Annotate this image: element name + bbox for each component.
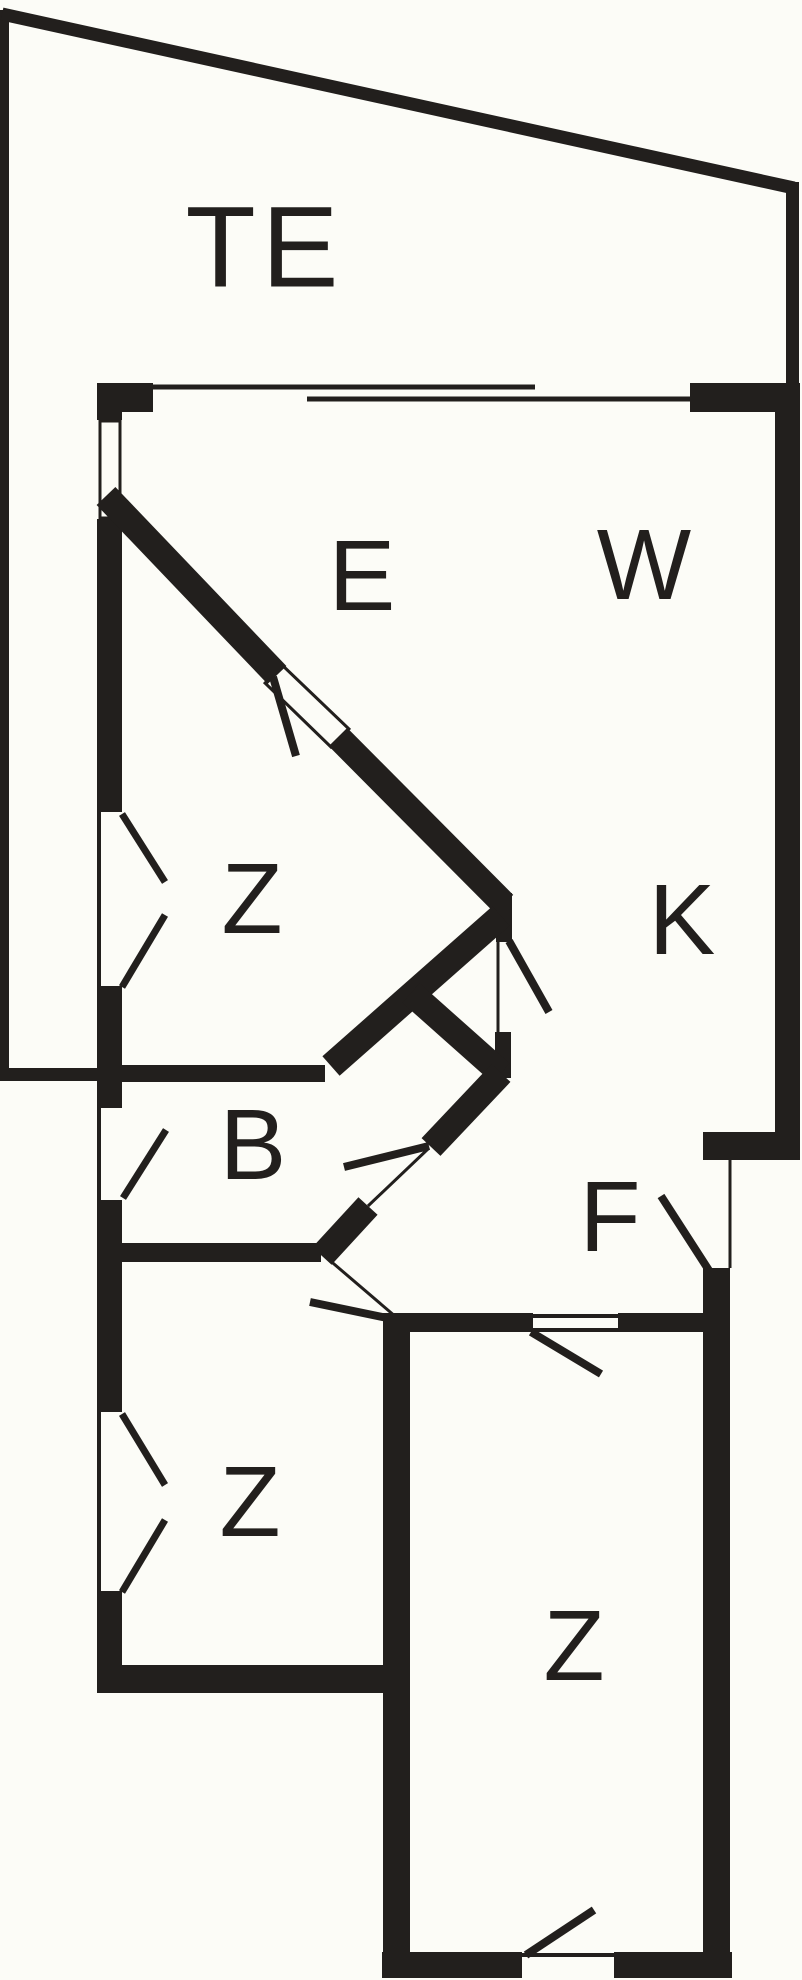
right-wall-upper: [775, 404, 800, 1132]
bathroom-top-wall: [97, 1065, 325, 1082]
room-label-bedroom-lower-right: Z: [543, 1596, 606, 1696]
bottom-wall-right-segment: [614, 1952, 732, 1978]
room-label-bedroom-upper-left: Z: [221, 849, 284, 949]
bathroom-bottom-wall: [97, 1243, 321, 1262]
right-wall-lower: [703, 1268, 730, 1978]
terrace-right-edge: [786, 182, 799, 387]
lower-bedrooms-divider-wall: [383, 1313, 410, 1978]
kitchen-door-leaf: [509, 941, 549, 1012]
right-wall-jog: [703, 1132, 800, 1160]
room-label-living: W: [597, 515, 693, 615]
lower-right-bedroom-top-wall-right: [618, 1313, 703, 1332]
window-leaf-upper-bedroom-top: [122, 814, 165, 882]
room-label-kitchen: K: [649, 870, 718, 970]
bottom-wall-left-segment: [382, 1952, 522, 1978]
floor-plan: TE E W Z K B F Z Z: [0, 0, 802, 1980]
diagonal-wall-lower-segment: [338, 737, 504, 904]
room-label-dining: E: [329, 526, 398, 626]
left-wall-seg1: [97, 404, 122, 420]
terrace-sloped-edge: [2, 14, 794, 188]
left-wall-seg4: [97, 1200, 122, 1412]
vestibule-wall-ne: [411, 993, 501, 1073]
terrace-left-edge: [0, 10, 9, 1080]
entrance-door-leaf: [661, 1196, 710, 1272]
window-leaf-lower-bedroom-bottom: [122, 1520, 165, 1592]
room-label-bathroom: B: [220, 1095, 289, 1195]
left-wall-seg2: [97, 519, 122, 812]
bottom-door-leaf: [526, 1910, 594, 1955]
window-leaf-bathroom: [123, 1130, 166, 1198]
window-leaf-upper-bedroom-bottom: [122, 915, 165, 987]
door-leaf-upper-bedroom: [273, 677, 296, 756]
vestibule-wall-se: [431, 1073, 501, 1147]
diagonal-door-opening-line-b: [281, 664, 350, 730]
bathroom-door-leaf: [344, 1146, 429, 1167]
floor-plan-drawing: [0, 0, 802, 1980]
lower-right-bedroom-top-wall-left: [392, 1313, 533, 1332]
room-label-hallway: F: [579, 1167, 642, 1267]
room-label-terrace: TE: [186, 191, 345, 306]
terrace-bottom-edge: [0, 1068, 100, 1081]
left-wall-seg3: [97, 986, 122, 1108]
room-label-bedroom-lower-left: Z: [219, 1452, 282, 1552]
diagonal-wall-upper-segment: [106, 496, 277, 675]
lower-right-bedroom-door-leaf: [531, 1332, 601, 1374]
bathroom-door-wall-stub: [322, 1206, 368, 1256]
window-leaf-lower-bedroom-top: [122, 1414, 165, 1485]
lower-left-bedroom-bottom-wall: [97, 1665, 410, 1693]
